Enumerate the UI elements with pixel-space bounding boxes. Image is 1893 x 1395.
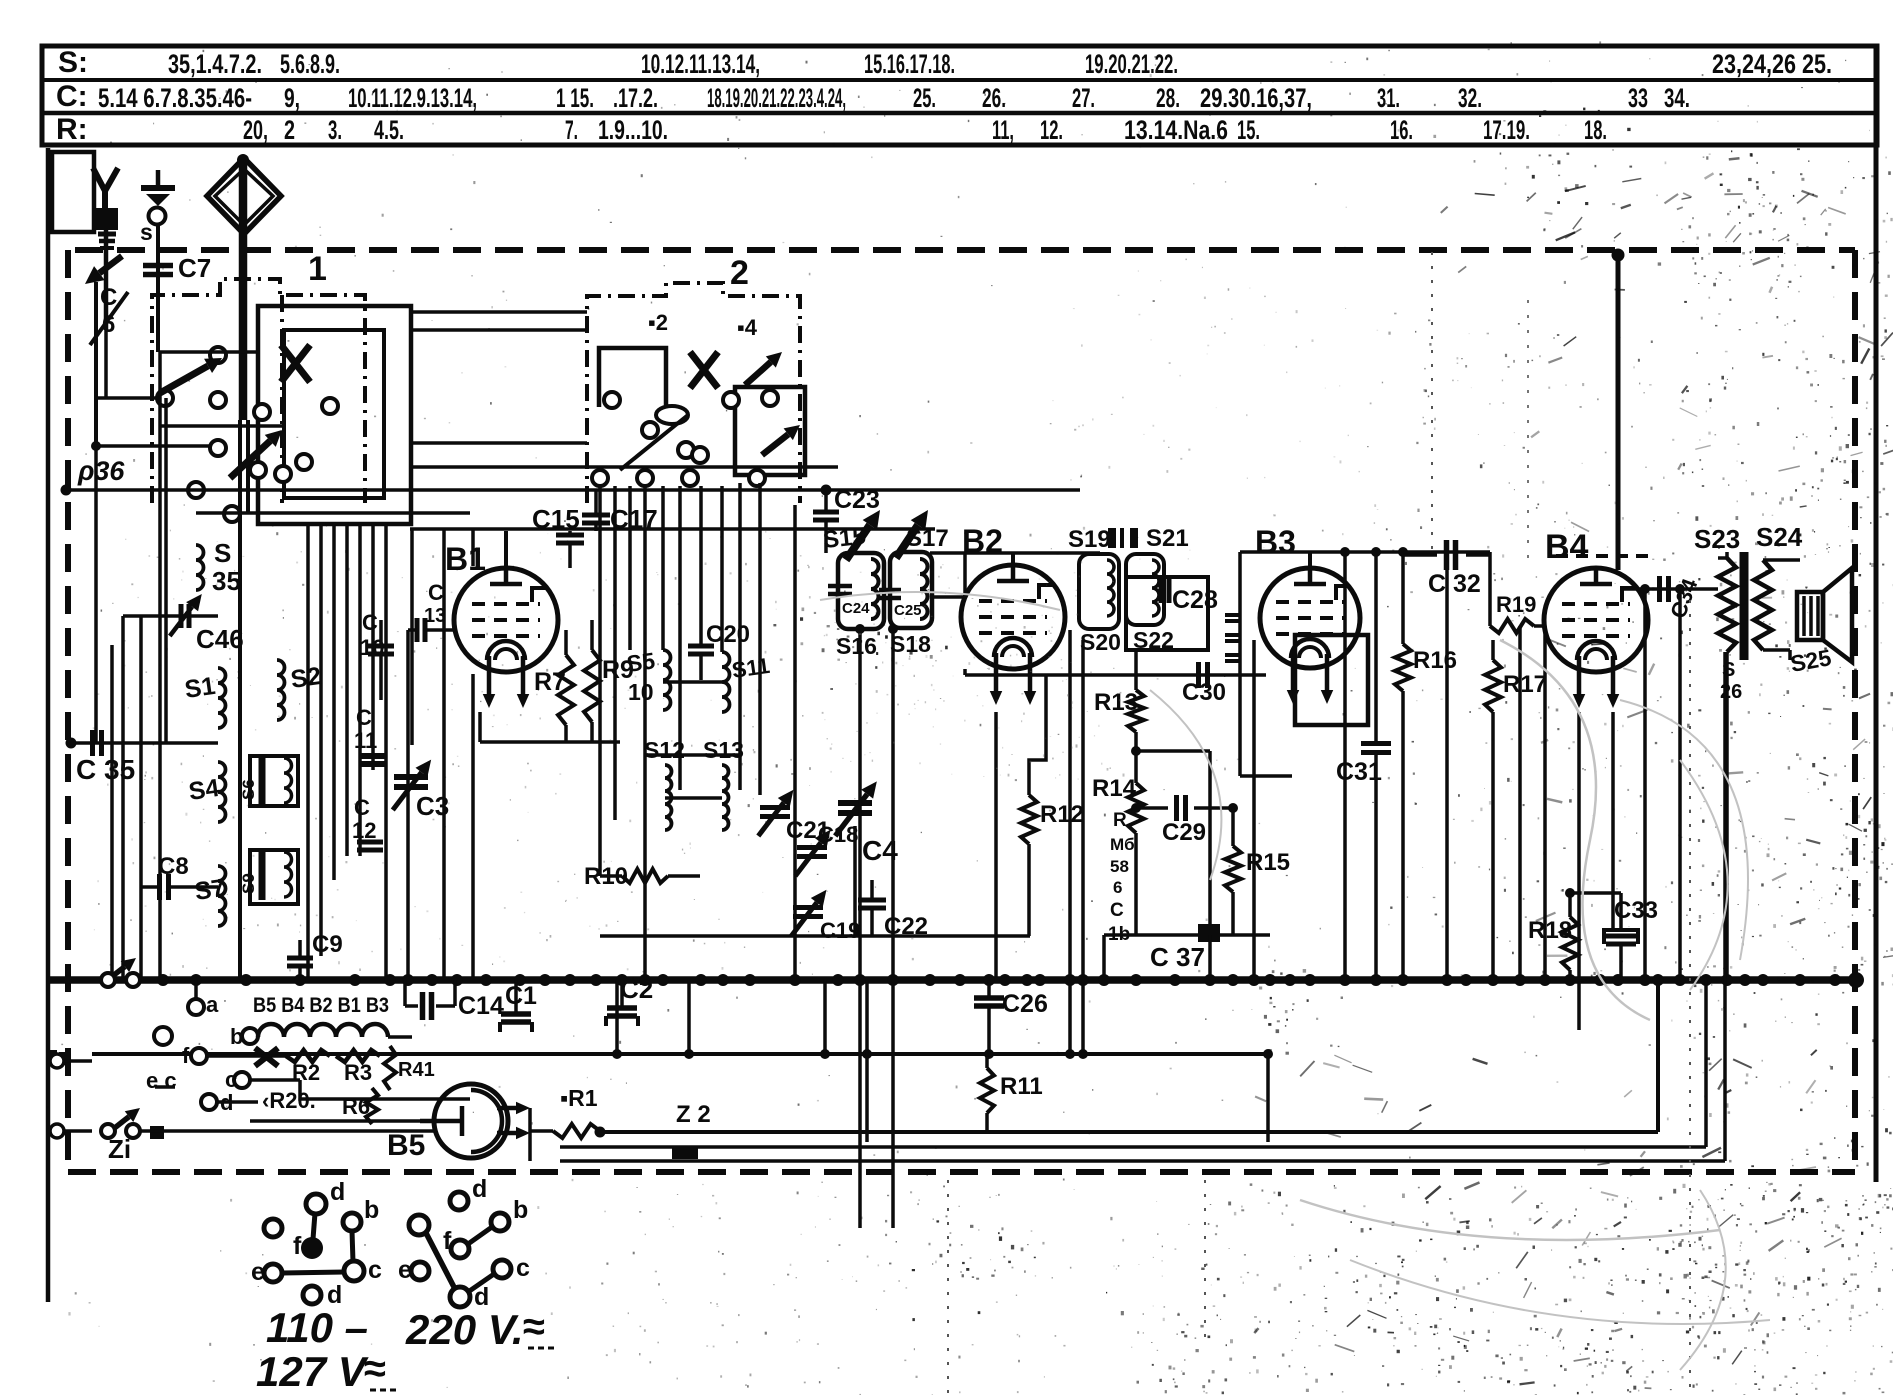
svg-text:3.: 3. [328, 115, 342, 145]
svg-text:d: d [330, 1178, 345, 1206]
svg-text:C26: C26 [1002, 990, 1048, 1018]
svg-text:C 32: C 32 [1428, 570, 1481, 598]
svg-text:S20: S20 [1080, 629, 1121, 655]
svg-text:b: b [230, 1024, 243, 1049]
svg-text:S17: S17 [906, 525, 949, 552]
svg-text:20,: 20, [243, 115, 268, 145]
svg-text:13: 13 [424, 605, 446, 627]
svg-text:10.11.12.9.13.14,: 10.11.12.9.13.14, [348, 83, 477, 113]
svg-text:33: 33 [1628, 83, 1648, 113]
svg-text:≈: ≈ [364, 1347, 386, 1391]
svg-text:23,24,26 25.: 23,24,26 25. [1712, 49, 1832, 79]
svg-text:B3: B3 [1255, 524, 1296, 560]
svg-text:35: 35 [212, 566, 241, 596]
svg-text:110 –: 110 – [266, 1304, 368, 1351]
svg-text:b: b [364, 1196, 379, 1224]
svg-text:16.: 16. [1390, 115, 1413, 145]
svg-text:R:: R: [56, 113, 88, 146]
svg-text:R13: R13 [1094, 689, 1138, 716]
svg-text:S:: S: [58, 46, 88, 79]
svg-text:4.5.: 4.5. [374, 115, 404, 145]
svg-text:c: c [516, 1254, 530, 1282]
svg-text:C3: C3 [416, 791, 449, 821]
svg-text:f: f [293, 1232, 302, 1260]
svg-text:17.19.: 17.19. [1483, 115, 1530, 145]
svg-text:C17: C17 [610, 504, 658, 534]
svg-text:R17: R17 [1503, 671, 1547, 698]
svg-text:S16: S16 [836, 633, 877, 659]
svg-text:220 V.: 220 V. [405, 1306, 524, 1353]
svg-text:11,: 11, [992, 115, 1014, 145]
svg-text:2: 2 [730, 254, 749, 292]
svg-text:S: S [214, 538, 231, 568]
svg-text:26.: 26. [982, 83, 1006, 113]
svg-text:13.14.Na.6: 13.14.Na.6 [1124, 115, 1228, 145]
svg-text:S24: S24 [1756, 522, 1803, 552]
svg-text:1 15.: 1 15. [556, 83, 594, 113]
svg-text:15.: 15. [1237, 115, 1260, 145]
svg-text:S6: S6 [239, 779, 258, 800]
svg-text:.17.2.: .17.2. [613, 83, 658, 113]
svg-text:d: d [472, 1175, 487, 1203]
svg-text:R41: R41 [398, 1059, 435, 1081]
svg-text:27.: 27. [1072, 83, 1095, 113]
svg-text:R12: R12 [1040, 801, 1084, 828]
svg-text:5.14 6.7.8.35.46-: 5.14 6.7.8.35.46- [98, 83, 252, 113]
svg-text:S19: S19 [1068, 526, 1111, 553]
svg-text:C23: C23 [834, 486, 880, 514]
svg-text:Zi: Zi [108, 1134, 131, 1164]
svg-text:▪2: ▪2 [648, 310, 668, 335]
svg-text:28.: 28. [1156, 83, 1180, 113]
svg-text:‹R20.: ‹R20. [262, 1088, 316, 1113]
svg-text:B1: B1 [445, 541, 486, 577]
svg-text:1: 1 [308, 250, 327, 288]
svg-text:32.: 32. [1458, 83, 1482, 113]
svg-text:R3: R3 [344, 1060, 372, 1085]
svg-text:10: 10 [628, 679, 654, 705]
svg-text:C46: C46 [196, 624, 244, 654]
svg-text:S1: S1 [183, 672, 217, 704]
svg-text:e c: e c [146, 1068, 177, 1093]
svg-text:7.: 7. [565, 115, 578, 145]
svg-text:C14: C14 [458, 992, 504, 1020]
svg-text:R18: R18 [1528, 917, 1572, 944]
svg-text:B5 B4 B2 B1 B3: B5 B4 B2 B1 B3 [253, 994, 389, 1017]
svg-text:▪R1: ▪R1 [560, 1085, 598, 1111]
svg-text:6: 6 [102, 311, 115, 338]
svg-text:C8: C8 [158, 853, 189, 880]
svg-text:C25: C25 [894, 602, 922, 619]
svg-text:R19: R19 [1496, 592, 1536, 617]
svg-text:15.16.17.18.: 15.16.17.18. [864, 49, 955, 79]
svg-text:C20: C20 [706, 621, 750, 648]
svg-text:1.9...10.: 1.9...10. [598, 115, 668, 145]
svg-text:S4: S4 [187, 774, 221, 806]
svg-text:B4: B4 [1545, 528, 1589, 566]
svg-text:C15: C15 [532, 504, 580, 534]
svg-text:C28: C28 [1172, 586, 1218, 614]
svg-text:R14: R14 [1092, 775, 1137, 802]
svg-text:s: s [140, 219, 153, 245]
svg-text:a: a [206, 992, 219, 1017]
svg-text:C30: C30 [1182, 679, 1226, 706]
svg-text:c: c [225, 1067, 237, 1092]
svg-text:C 37: C 37 [1150, 942, 1205, 972]
svg-text:C31: C31 [1336, 758, 1382, 786]
svg-text:18.19.20.21.22.23.4.24,: 18.19.20.21.22.23.4.24, [707, 83, 846, 113]
svg-text:18.: 18. [1584, 115, 1607, 145]
svg-text:S15: S15 [822, 523, 867, 554]
svg-text:35,1.4.7.2.: 35,1.4.7.2. [168, 49, 262, 79]
svg-text:31.: 31. [1377, 83, 1400, 113]
svg-text:C2: C2 [620, 974, 653, 1004]
svg-text:19.20.21.22.: 19.20.21.22. [1085, 49, 1178, 79]
svg-text:C29: C29 [1162, 819, 1206, 846]
svg-text:C9: C9 [312, 931, 343, 958]
svg-text:Z 2: Z 2 [676, 1101, 711, 1128]
svg-text:S21: S21 [1146, 525, 1189, 552]
svg-text:≈: ≈ [523, 1305, 545, 1349]
svg-text:R16: R16 [1413, 647, 1457, 674]
svg-text:B5: B5 [387, 1129, 425, 1162]
svg-text:b: b [513, 1196, 528, 1224]
svg-text:R6: R6 [342, 1094, 370, 1119]
svg-text:12: 12 [352, 818, 376, 843]
svg-text:Мб: Мб [1110, 835, 1135, 854]
svg-text:58: 58 [1110, 857, 1129, 876]
svg-text:C: C [100, 284, 117, 311]
svg-text:S13: S13 [703, 737, 744, 763]
svg-text:C: C [356, 705, 372, 730]
svg-text:C7: C7 [178, 253, 211, 283]
svg-text:S2: S2 [289, 662, 323, 694]
svg-text:e: e [251, 1258, 265, 1286]
svg-text:34.: 34. [1664, 83, 1690, 113]
svg-text:c: c [368, 1256, 382, 1284]
svg-text:11: 11 [354, 728, 377, 753]
svg-text:e: e [398, 1256, 412, 1284]
svg-text:R: R [1113, 810, 1127, 831]
svg-text:R11: R11 [1000, 1073, 1043, 1100]
svg-text:127 V: 127 V [256, 1348, 369, 1395]
svg-text:C:: C: [56, 80, 88, 113]
svg-text:▪4: ▪4 [737, 315, 758, 340]
svg-text:C 35: C 35 [76, 754, 135, 785]
svg-text:S5: S5 [625, 647, 657, 677]
svg-text:S9: S9 [239, 873, 258, 894]
svg-text:R7: R7 [534, 668, 566, 696]
svg-text:C: C [428, 580, 444, 605]
svg-text:C: C [354, 795, 370, 820]
svg-text:f: f [182, 1043, 190, 1068]
svg-text:f: f [443, 1227, 452, 1255]
svg-text:25.: 25. [913, 83, 936, 113]
svg-text:R10: R10 [584, 863, 628, 890]
svg-text:S23: S23 [1694, 524, 1740, 554]
svg-text:C1: C1 [505, 982, 537, 1010]
svg-text:12.: 12. [1040, 115, 1063, 145]
svg-text:S11: S11 [730, 653, 771, 683]
svg-text:C: C [1110, 900, 1124, 921]
svg-text:C33: C33 [1614, 897, 1658, 924]
svg-text:29.30.16,37,: 29.30.16,37, [1200, 83, 1312, 113]
svg-text:C: C [362, 610, 378, 635]
svg-text:2: 2 [284, 115, 295, 145]
svg-text:10.12.11.13.14,: 10.12.11.13.14, [641, 49, 760, 79]
svg-text:ρ36: ρ36 [77, 456, 125, 486]
svg-text:S7: S7 [193, 874, 227, 906]
svg-text:6: 6 [1113, 878, 1122, 897]
